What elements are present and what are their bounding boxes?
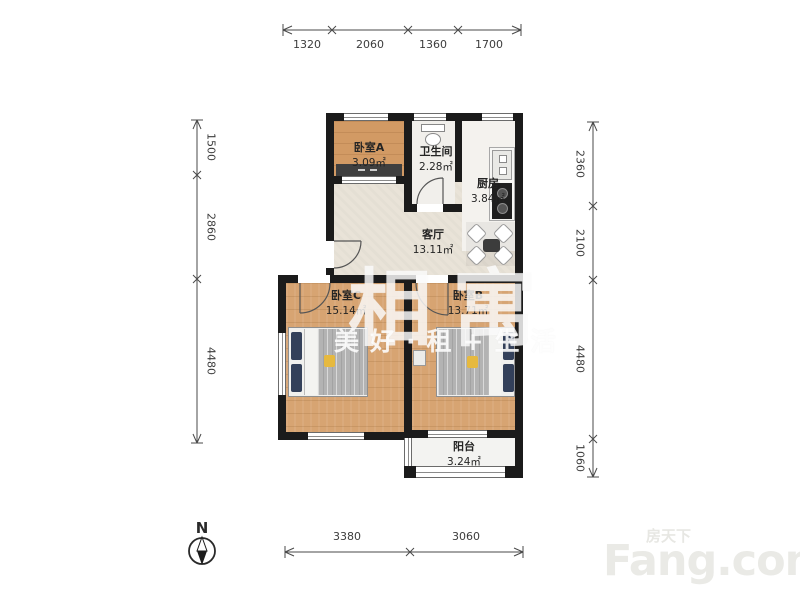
dim-line-bottom bbox=[285, 546, 523, 558]
bathroom-door-arc bbox=[417, 178, 443, 204]
dim-line-top bbox=[283, 24, 521, 36]
dim-line-left bbox=[191, 120, 203, 443]
fang-logo-en: Fang.com bbox=[603, 536, 800, 586]
bedroom-c-door-arc bbox=[300, 283, 330, 313]
watermark-slogan: 美好·租+生活 bbox=[334, 322, 566, 358]
compass-north-icon bbox=[189, 537, 215, 565]
floorplan-stage: 卧室A 3.09㎡ 卫生间 2.28㎡ 厨房 3.84㎡ 客厅 13.11㎡ 卧… bbox=[0, 0, 800, 600]
dim-line-right bbox=[587, 122, 599, 477]
